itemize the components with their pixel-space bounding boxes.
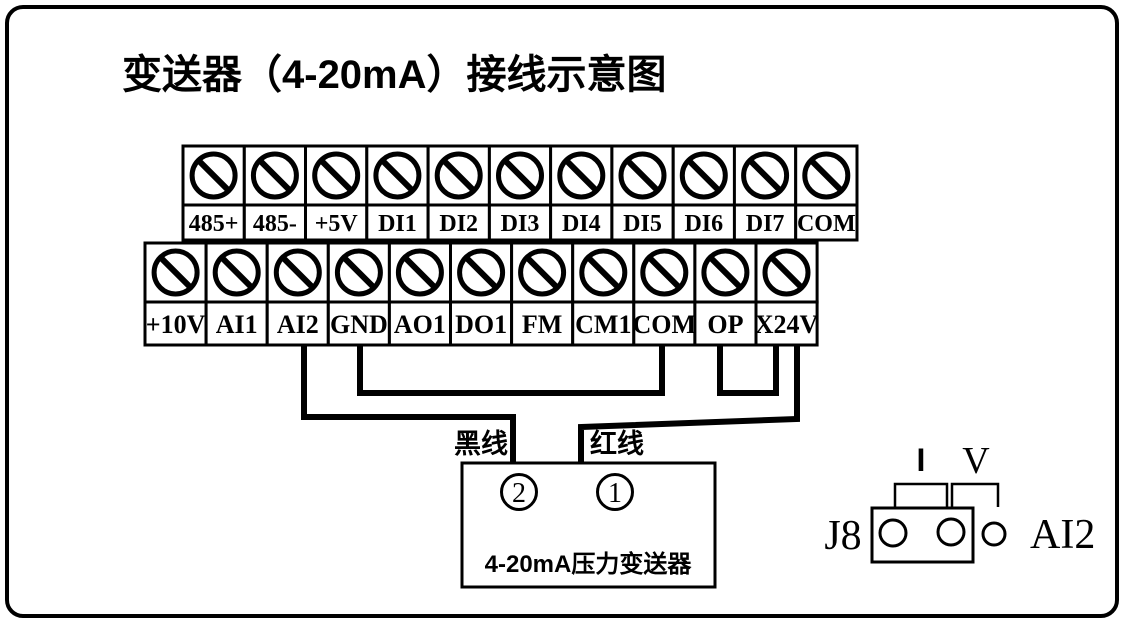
terminal-gnd: GND [328,243,389,345]
terminal-label: AO1 [394,310,446,339]
terminal-label: DI6 [684,211,723,237]
terminal-fm: FM [512,243,573,345]
terminal-ai1: AI1 [206,243,267,345]
terminal-label: COM [633,310,697,339]
terminal-label: AI1 [216,310,258,339]
terminal-label: 485- [253,211,297,237]
terminal-cm1: CM1 [573,243,634,345]
terminal-label: CM1 [575,310,631,339]
jumper-pin-2-icon [938,519,964,545]
wiring-diagram: 变送器（4-20mA）接线示意图 485+485-+5VDI1DI2DI3DI4… [0,0,1125,624]
transmitter-box: 2 1 4-20mA压力变送器 [462,463,715,587]
voltage-mode-label: V [962,440,990,482]
terminal-485: 485+ [183,146,244,240]
terminal-2-number: 2 [512,478,526,509]
terminal-op: OP [695,243,756,345]
terminal-di4: DI4 [551,146,612,240]
terminal-label: DI3 [501,211,540,237]
terminal-label: OP [707,310,743,339]
diagram-page: 变送器（4-20mA）接线示意图 485+485-+5VDI1DI2DI3DI4… [0,0,1125,624]
terminal-di3: DI3 [489,146,550,240]
j8-name-label: J8 [824,513,861,559]
terminal-label: FM [522,310,562,339]
terminal-do1: DO1 [451,243,512,345]
terminal-485: 485- [244,146,305,240]
transmitter-terminal-2: 2 [502,475,537,510]
jumper-pin-3-icon [983,523,1005,545]
terminal-di6: DI6 [673,146,734,240]
terminal-di1: DI1 [367,146,428,240]
red-wire-label: 红线 [590,428,644,459]
terminal-label: DI5 [623,211,662,237]
terminal-label: DI2 [439,211,478,237]
terminal-strip-bottom: +10VAI1AI2GNDAO1DO1FMCM1COMOPX24V [145,243,818,345]
diagram-title: 变送器（4-20mA）接线示意图 [122,53,667,97]
jumper-pin-1-icon [880,520,906,546]
terminal-label: COM [797,211,856,237]
terminal-x24v: X24V [755,243,819,345]
terminal-label: DI7 [746,211,785,237]
terminal-1-number: 1 [608,478,622,509]
terminal-di7: DI7 [734,146,795,240]
black-wire-label: 黑线 [454,429,508,459]
terminal-di2: DI2 [428,146,489,240]
current-mode-label: I [917,442,926,478]
terminal-di5: DI5 [612,146,673,240]
terminal-strip-top: 485+485-+5VDI1DI2DI3DI4DI5DI6DI7COM [183,146,857,240]
terminal-label: AI2 [277,310,319,339]
terminal-label: DI4 [562,211,601,237]
terminal-label: +10V [146,310,206,339]
terminal-label: 485+ [189,211,239,237]
jumper-channel-label: AI2 [1030,512,1095,558]
transmitter-terminal-1: 1 [598,475,633,510]
terminal-com: COM [633,243,697,345]
transmitter-label: 4-20mA压力变送器 [485,550,693,578]
terminal-ai2: AI2 [267,243,328,345]
terminal-com: COM [796,146,857,240]
terminal-label: DO1 [455,310,507,339]
terminal-label: X24V [755,310,819,339]
terminal-label: DI1 [378,211,417,237]
terminal-label: GND [330,310,388,339]
terminal-ao1: AO1 [389,243,450,345]
terminal-5v: +5V [306,146,367,240]
terminal-10v: +10V [145,243,206,345]
terminal-label: +5V [315,211,359,237]
